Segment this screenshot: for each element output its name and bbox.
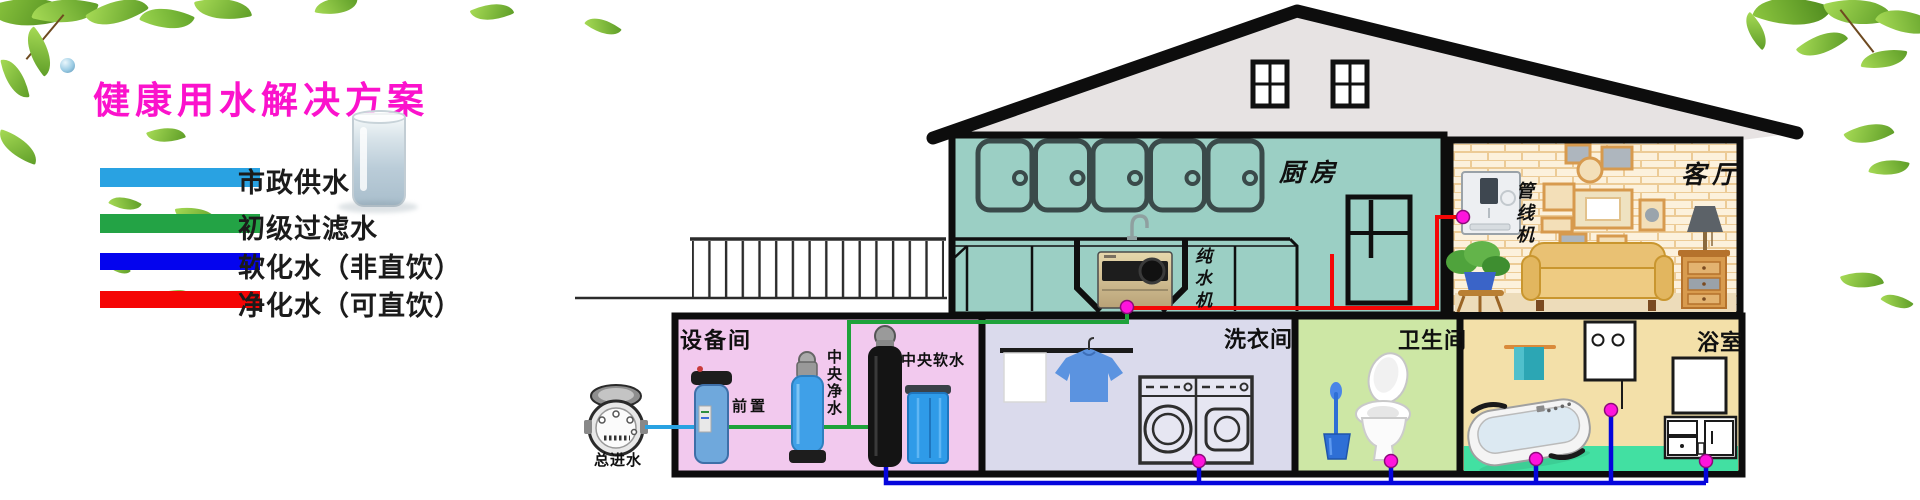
meter-label: 总进水 <box>594 449 642 470</box>
toilet-label: 卫生间 <box>1398 323 1467 355</box>
attic-window-left <box>1253 62 1287 106</box>
fence <box>575 239 947 298</box>
bath-label: 浴室 <box>1697 325 1743 357</box>
house-illustration <box>0 0 1920 500</box>
pure-water-label: 纯水机 <box>1189 247 1214 313</box>
banner: 健康用水解决方案 市政供水 初级过滤水 软化水（非直饮） 净化水（可直饮） <box>0 0 1920 500</box>
kitchen-label: 厨房 <box>1279 153 1341 189</box>
brine-tank <box>905 385 951 463</box>
vanity-cabinet <box>1665 417 1736 458</box>
washing-machines <box>1140 377 1252 463</box>
laundry-label: 洗衣间 <box>1224 322 1293 354</box>
living-label: 客厅 <box>1681 155 1743 191</box>
prefilter-label: 前置 <box>732 395 768 416</box>
softener-label: 中央软水 <box>901 349 965 370</box>
pipeline-label: 管线机 <box>1511 181 1537 247</box>
pure-water-machine <box>1098 252 1172 308</box>
mirror <box>1673 358 1726 413</box>
fridge <box>1348 197 1410 303</box>
prefilter <box>691 366 732 463</box>
equipment-label: 设备间 <box>680 323 752 355</box>
purifier-label: 中央净水 <box>823 349 844 417</box>
side-table <box>1678 250 1730 308</box>
water-meter <box>584 385 648 455</box>
attic-window-right <box>1333 62 1367 106</box>
